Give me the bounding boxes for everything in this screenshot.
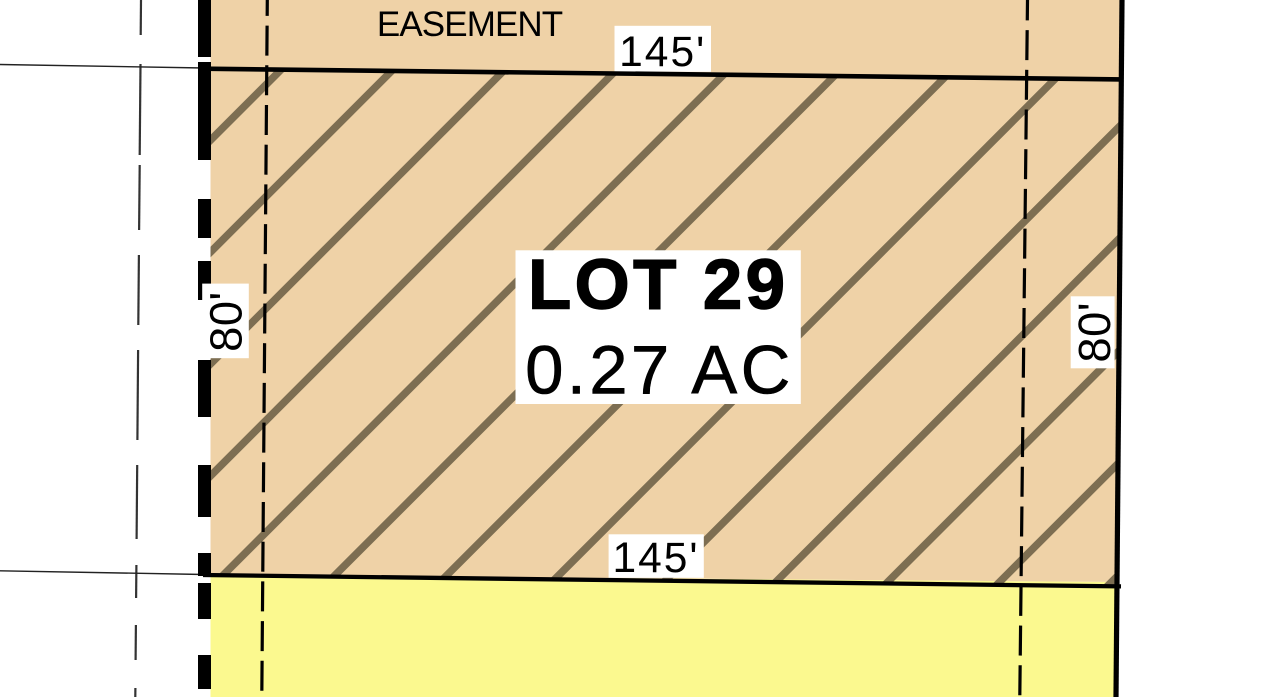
svg-text:80': 80' [201, 291, 252, 352]
svg-text:0.27 AC: 0.27 AC [525, 332, 794, 409]
svg-text:145': 145' [612, 535, 699, 582]
svg-text:EASEMENT: EASEMENT [377, 5, 563, 44]
svg-text:LOT 29: LOT 29 [528, 245, 788, 324]
svg-text:80': 80' [1069, 302, 1120, 363]
svg-text:145': 145' [619, 29, 706, 76]
